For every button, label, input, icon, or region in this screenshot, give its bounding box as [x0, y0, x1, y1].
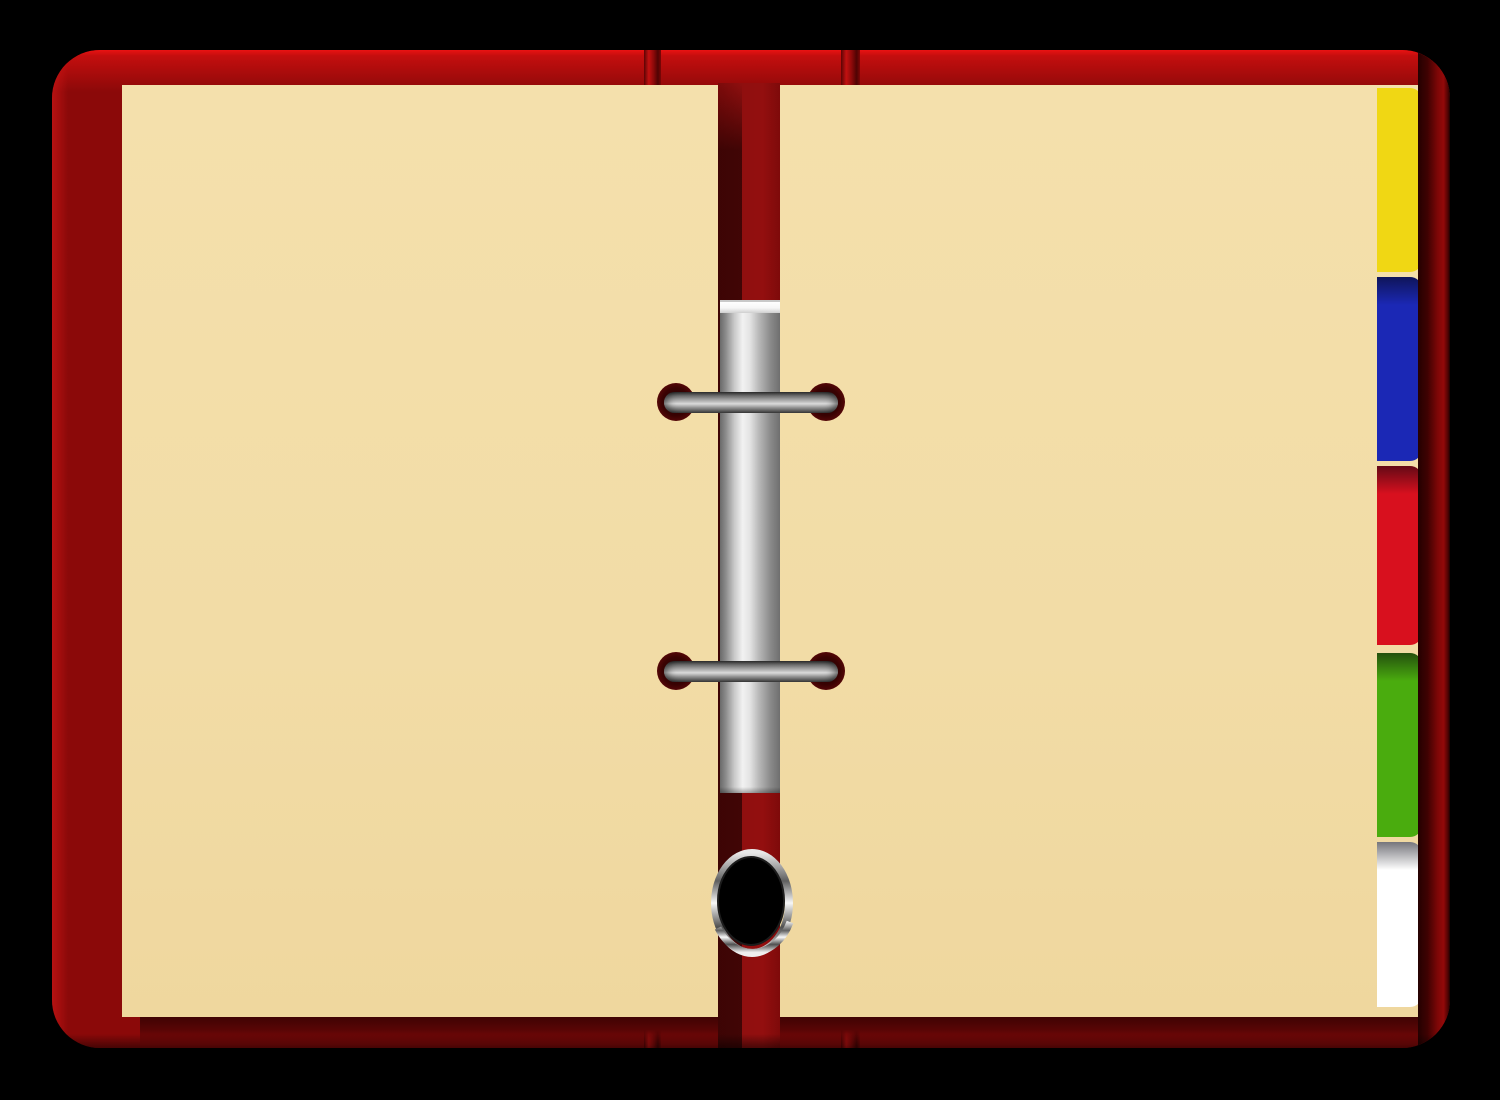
binder-cover	[52, 50, 1450, 1048]
binder-ring-upper	[664, 392, 838, 413]
tab-blue[interactable]	[1377, 277, 1422, 461]
cover-left-highlight	[52, 50, 68, 1048]
bottom-chrome-ring	[705, 840, 801, 977]
page-right[interactable]	[780, 85, 1429, 1017]
tab-cast-shadow	[1377, 277, 1422, 305]
cover-bottom-shade	[52, 1034, 1450, 1048]
binder-rod	[720, 300, 780, 793]
tab-cast-shadow	[1377, 653, 1422, 681]
tab-cast-shadow	[1377, 842, 1422, 870]
tab-white[interactable]	[1377, 842, 1422, 1007]
tab-red[interactable]	[1377, 466, 1422, 645]
tab-cast-shadow	[1377, 466, 1422, 494]
binder-ring-lower	[664, 661, 838, 682]
page-left[interactable]	[122, 85, 718, 1017]
tab-green[interactable]	[1377, 653, 1422, 837]
tab-yellow[interactable]	[1377, 88, 1422, 272]
cover-right-shade	[1418, 50, 1450, 1048]
chrome-ring-icon	[705, 840, 801, 972]
scene-background	[0, 0, 1500, 1100]
